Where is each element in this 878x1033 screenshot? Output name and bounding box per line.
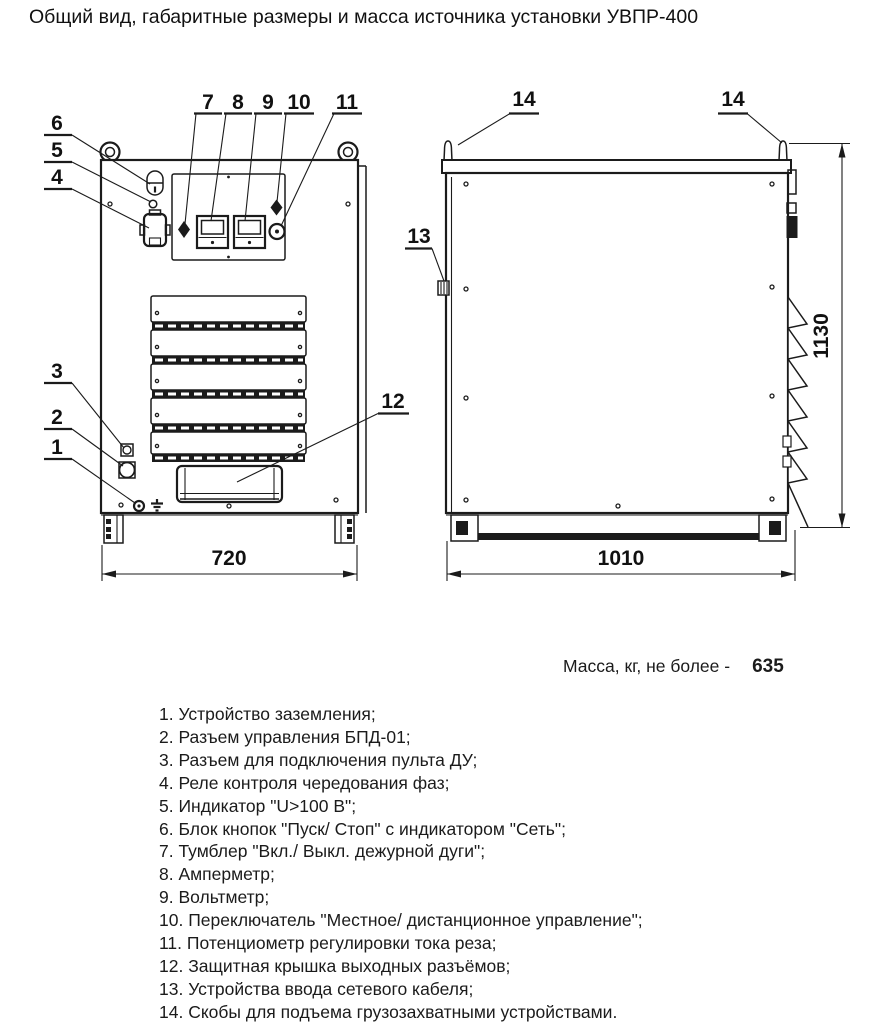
legend-item: 11. Потенциометр регулировки тока реза;: [159, 932, 643, 955]
side-width-label: 1010: [598, 547, 645, 570]
callout-2-label: 2: [51, 406, 63, 429]
mass-value: 635: [752, 656, 784, 677]
mass-label: Масса, кг, не более -: [563, 656, 730, 676]
legend-item: 5. Индикатор "U>100 В";: [159, 795, 643, 818]
callout-10-label: 10: [287, 91, 310, 114]
legend-item: 9. Вольтметр;: [159, 886, 643, 909]
legend-item: 12. Защитная крышка выходных разъёмов;: [159, 955, 643, 978]
callout-4-label: 4: [51, 166, 63, 189]
callout-8-label: 8: [232, 91, 244, 114]
legend-item: 3. Разъем для подключения пульта ДУ;: [159, 749, 643, 772]
legend-item: 7. Тумблер "Вкл./ Выкл. дежурной дуги";: [159, 840, 643, 863]
callout-13-label: 13: [407, 225, 430, 248]
side-height-label: 1130: [810, 313, 833, 359]
page-title: Общий вид, габаритные размеры и масса ис…: [29, 6, 698, 29]
lifting-hook-icon: [444, 141, 787, 161]
front-base-feet: [101, 515, 358, 543]
legend-item: 13. Устройства ввода сетевого кабеля;: [159, 978, 643, 1001]
legend-item: 6. Блок кнопок "Пуск/ Стоп" с индикаторо…: [159, 818, 643, 841]
side-cabinet-outline: [446, 173, 788, 513]
front-width-label: 720: [211, 547, 246, 570]
side-base-feet: [446, 515, 788, 541]
front-view: 720 6 5 4 3 2 1 7 8 9: [44, 91, 409, 581]
technical-drawing: 720 6 5 4 3 2 1 7 8 9: [0, 80, 878, 610]
callout-11-label: 11: [336, 91, 359, 114]
callout-1-label: 1: [51, 436, 63, 459]
legend-item: 8. Амперметр;: [159, 863, 643, 886]
callout-6-label: 6: [51, 112, 63, 135]
legend-item: 2. Разъем управления БПД-01;: [159, 726, 643, 749]
side-view: 1010 1130 14 14 13: [405, 88, 850, 581]
callout-14-left-label: 14: [512, 88, 536, 111]
callout-12-label: 12: [381, 390, 404, 413]
callout-9-label: 9: [262, 91, 274, 114]
drawing-page: Общий вид, габаритные размеры и масса ис…: [0, 0, 878, 1033]
legend-item: 14. Скобы для подъема грузозахватными ус…: [159, 1001, 643, 1024]
callout-7-label: 7: [202, 91, 214, 114]
legend-item: 1. Устройство заземления;: [159, 703, 643, 726]
legend-item: 4. Реле контроля чередования фаз;: [159, 772, 643, 795]
callout-3-label: 3: [51, 360, 63, 383]
cable-entry-gland: [438, 281, 449, 295]
callout-14-right-label: 14: [721, 88, 745, 111]
callout-5-label: 5: [51, 139, 63, 162]
legend-item: 10. Переключатель "Местное/ дистанционно…: [159, 909, 643, 932]
side-top-band: [442, 160, 791, 173]
mass-line: Масса, кг, не более -635: [563, 656, 784, 678]
legend-list: 1. Устройство заземления; 2. Разъем упра…: [159, 703, 643, 1024]
front-width-dimension: 720: [102, 545, 357, 581]
